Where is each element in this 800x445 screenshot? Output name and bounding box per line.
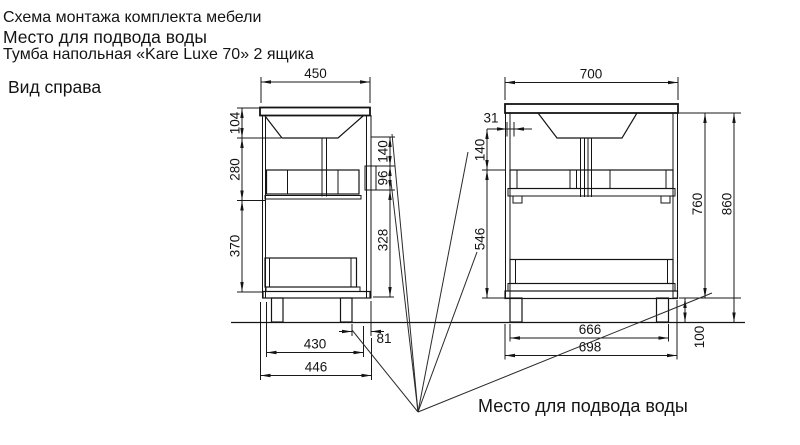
side-view-cabinet [260, 108, 376, 323]
dim-666: 666 [579, 322, 602, 337]
back-panel-side [367, 116, 372, 299]
dim-96: 96 [376, 170, 391, 185]
drawing-page: Схема монтажа комплекта мебели Место для… [0, 0, 800, 445]
dim-31: 31 [483, 111, 498, 126]
right-leg-front [657, 298, 669, 322]
dim-81: 81 [376, 331, 391, 346]
dim-140-front: 140 [473, 139, 488, 162]
dim-698: 698 [579, 340, 602, 355]
left-panel-front [506, 113, 511, 298]
water-supply-label: Место для подвода воды [478, 396, 688, 416]
base-panel-front [505, 291, 678, 299]
dim-450: 450 [304, 66, 327, 81]
dim-430: 430 [304, 337, 327, 352]
dim-760: 760 [690, 193, 705, 216]
side-left-chain-lines [237, 108, 281, 292]
left-leg-front [510, 298, 522, 322]
dim-860: 860 [720, 193, 735, 216]
dim-546: 546 [473, 228, 488, 251]
assembly-drawing: 450 104 280 370 140 [0, 0, 800, 445]
dim-104: 104 [228, 111, 243, 134]
upper-drawer-side [265, 170, 361, 199]
dim-100: 100 [692, 326, 707, 349]
sink-basin-side [265, 116, 363, 138]
dim-700: 700 [580, 67, 603, 82]
base-panel-side [263, 292, 370, 299]
lower-drawer-side [265, 258, 360, 292]
right-panel-front [673, 113, 678, 298]
dim-328: 328 [376, 229, 391, 252]
front-right-chain-lines [679, 113, 741, 323]
dim-446: 446 [305, 360, 328, 375]
drain-pipe-side [322, 138, 327, 197]
sink-basin-front [538, 113, 637, 138]
back-leg-side [341, 298, 353, 322]
front-leg-side [272, 298, 284, 322]
lower-drawer-front [508, 260, 675, 292]
countertop-front [505, 104, 678, 113]
dim-370: 370 [228, 235, 243, 258]
countertop-side [260, 108, 370, 116]
water-supply-leader-lines [352, 134, 712, 412]
dim-280: 280 [228, 158, 243, 181]
front-view-cabinet [487, 104, 678, 322]
dim-140-side: 140 [376, 140, 391, 163]
